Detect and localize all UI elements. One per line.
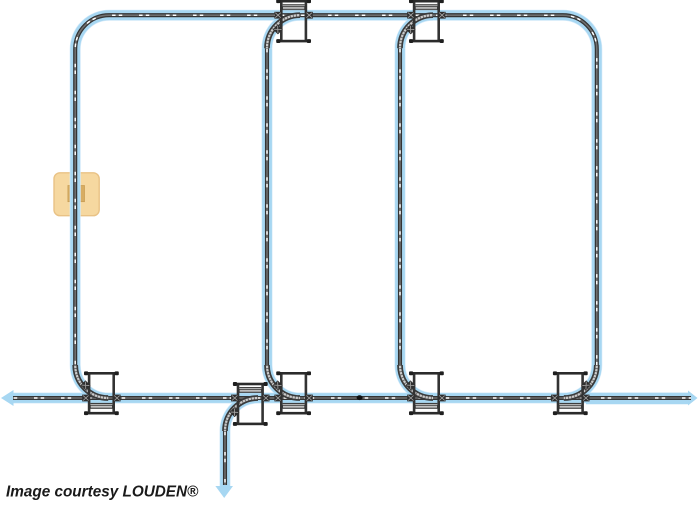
svg-text:Image courtesy LOUDEN®: Image courtesy LOUDEN®: [6, 484, 199, 501]
